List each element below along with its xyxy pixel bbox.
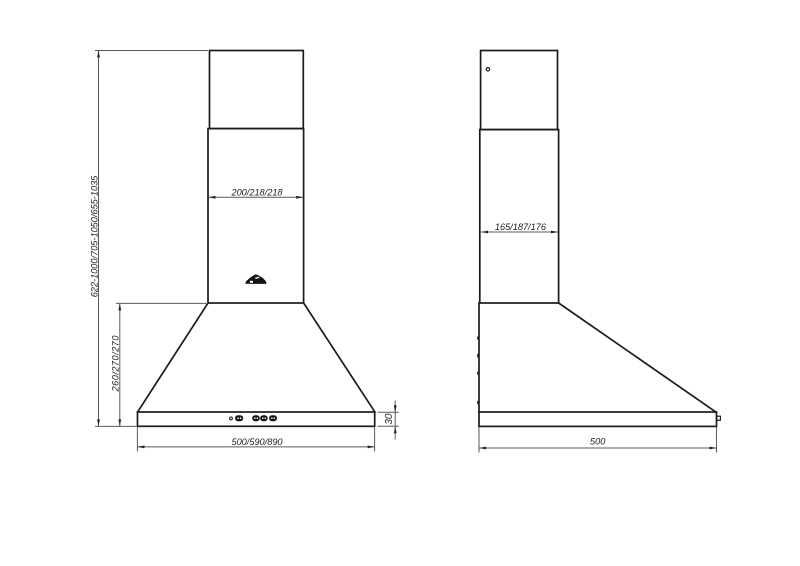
svg-text:200/218/218: 200/218/218: [230, 187, 283, 197]
svg-text:30: 30: [384, 413, 395, 425]
svg-text:260/270/270: 260/270/270: [111, 335, 121, 393]
svg-text:165/187/176: 165/187/176: [495, 222, 547, 232]
svg-text:500: 500: [590, 436, 606, 446]
svg-text:622-1000/705-1050/655-1035: 622-1000/705-1050/655-1035: [89, 175, 99, 297]
svg-text:500/590/890: 500/590/890: [231, 437, 283, 447]
